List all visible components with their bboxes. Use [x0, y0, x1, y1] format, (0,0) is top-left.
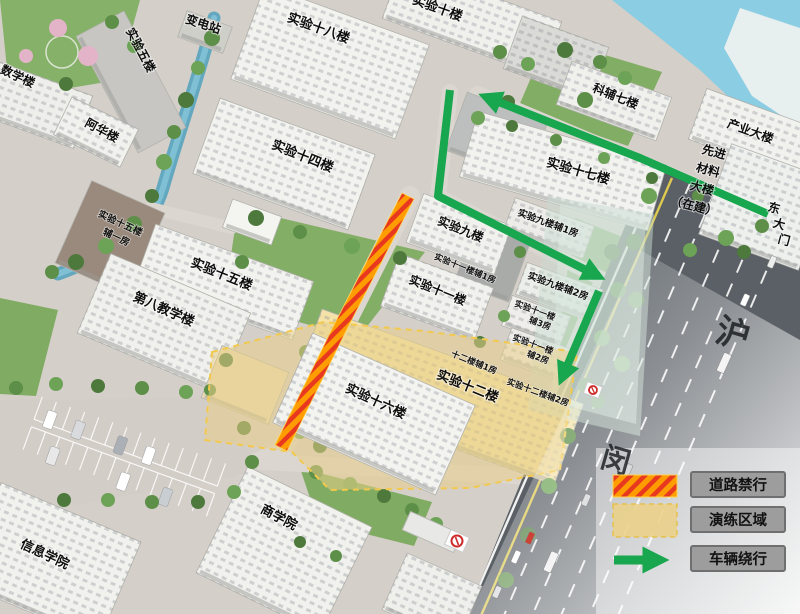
- tree: [641, 188, 657, 204]
- tree: [191, 495, 205, 509]
- tree: [718, 230, 734, 246]
- tree: [293, 225, 307, 239]
- tree: [593, 55, 607, 69]
- tree: [49, 377, 63, 391]
- tree: [227, 485, 241, 499]
- tree: [514, 246, 526, 258]
- legend-item-drill-area: 演练区域: [613, 504, 785, 537]
- tree: [755, 219, 769, 233]
- tree: [9, 381, 23, 395]
- tree: [498, 310, 510, 322]
- tree: [45, 265, 59, 279]
- tree: [550, 134, 562, 146]
- tree: [248, 210, 264, 226]
- drill-area-swatch: [613, 504, 677, 537]
- tree: [557, 42, 573, 58]
- tree: [167, 125, 181, 139]
- campus-map-image: 变电站 实验五楼 数学楼 阿华楼 实验十八楼 实验十楼 实验十四楼 科辅七楼 产…: [0, 0, 800, 614]
- tree: [294, 536, 306, 548]
- tree: [156, 154, 172, 170]
- tree: [49, 19, 67, 37]
- tree: [91, 379, 105, 393]
- legend-label-road-closed: 道路禁行: [709, 476, 767, 494]
- tree: [235, 255, 249, 269]
- tree: [179, 385, 193, 399]
- tree: [191, 61, 205, 75]
- legend-label-drill-area: 演练区域: [709, 511, 767, 529]
- legend-item-road-closed: 道路禁行: [613, 472, 785, 497]
- tree: [178, 92, 194, 108]
- tree: [506, 120, 518, 132]
- tree: [598, 152, 610, 164]
- tree: [105, 15, 119, 29]
- tree: [330, 550, 342, 562]
- tree: [135, 381, 149, 395]
- tree: [471, 111, 485, 125]
- tree: [618, 71, 632, 85]
- tree: [145, 495, 159, 509]
- tree: [19, 49, 33, 63]
- campus-map-canvas: 变电站 实验五楼 数学楼 阿华楼 实验十八楼 实验十楼 实验十四楼 科辅七楼 产…: [0, 0, 800, 614]
- tree: [521, 57, 535, 71]
- road-closed-swatch: [613, 475, 677, 497]
- tree: [737, 245, 751, 259]
- legend-label-vehicle-detour: 车辆绕行: [709, 550, 767, 568]
- tree: [344, 238, 360, 254]
- tree: [57, 493, 71, 507]
- tree: [78, 46, 98, 66]
- legend: 道路禁行 演练区域 车辆绕行: [613, 472, 785, 571]
- tree: [68, 254, 84, 270]
- tree: [245, 455, 259, 469]
- tree: [577, 92, 593, 108]
- tree: [683, 243, 697, 257]
- tree: [145, 189, 159, 203]
- tree: [377, 489, 391, 503]
- tree: [646, 172, 658, 184]
- tree: [59, 77, 73, 91]
- tree: [493, 45, 507, 59]
- tree: [393, 251, 407, 265]
- tree: [101, 493, 115, 507]
